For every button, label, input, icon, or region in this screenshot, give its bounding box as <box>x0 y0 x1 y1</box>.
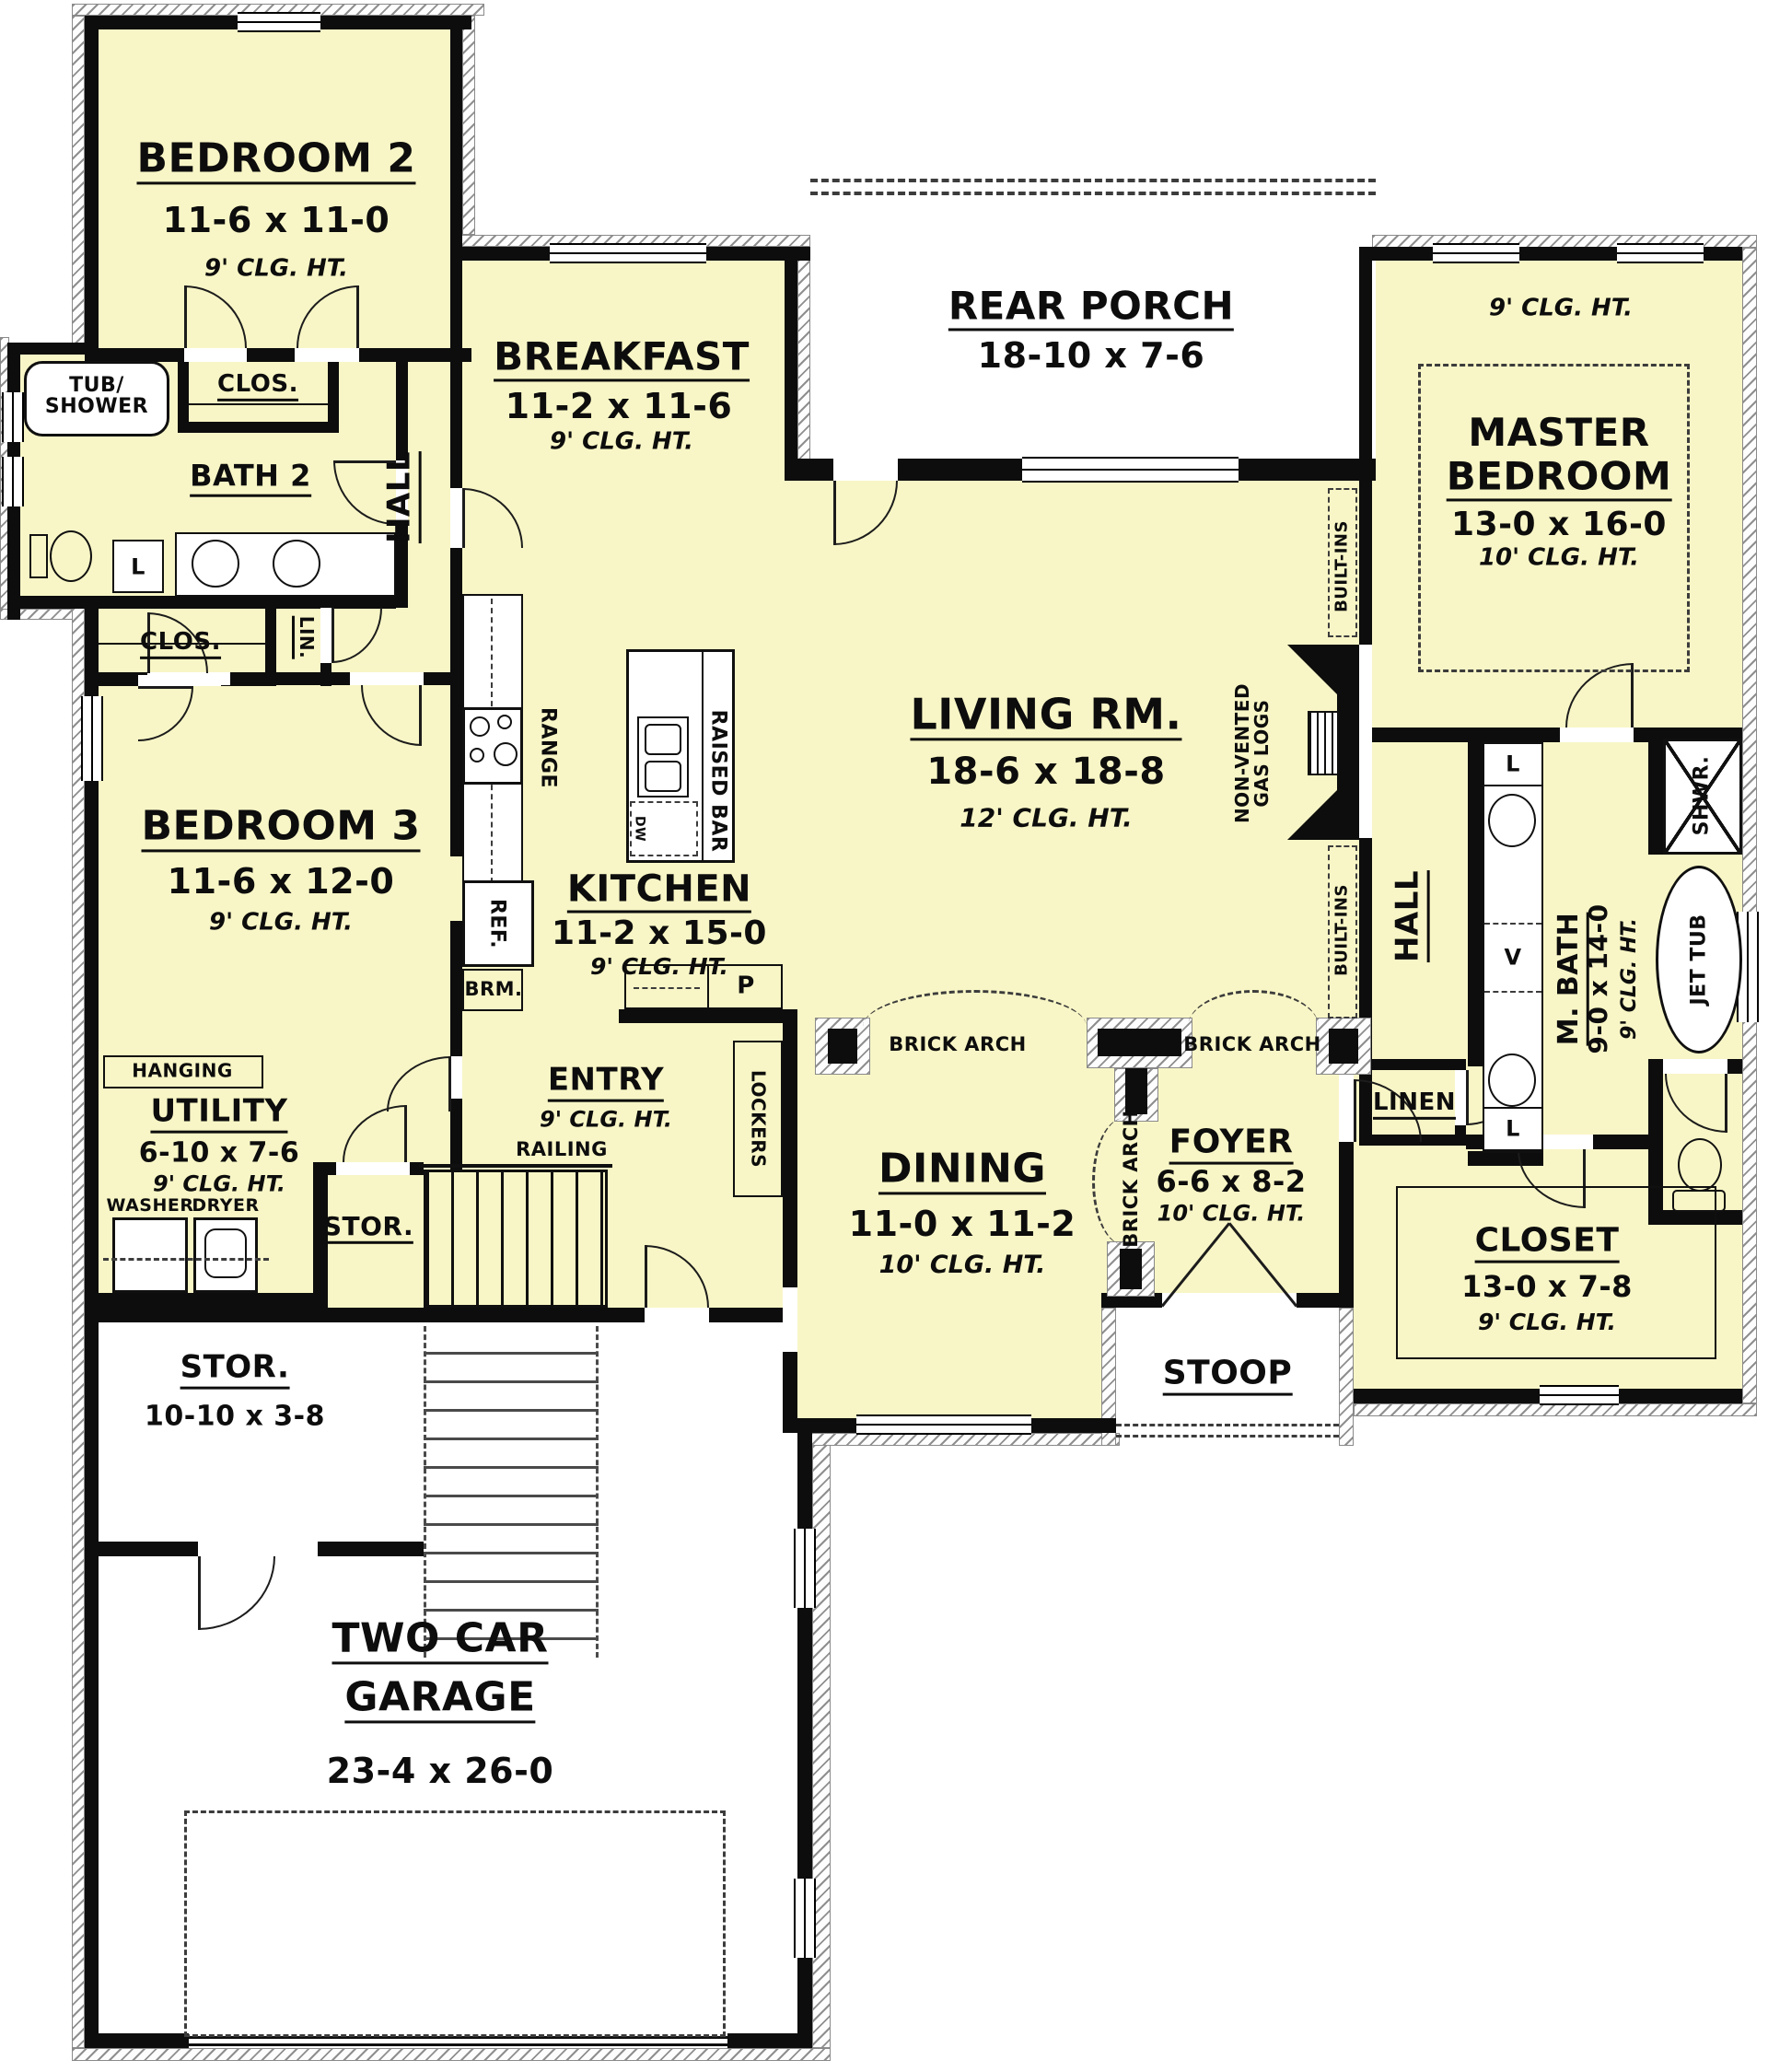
room-name-kitchen: KITCHEN <box>567 870 751 914</box>
room-clg-entry: 9' CLG. HT. <box>540 1108 672 1131</box>
dryer-door <box>204 1228 247 1278</box>
label-linen-chute: LIN. <box>292 616 316 659</box>
door-opening <box>295 348 359 362</box>
room-dims-bedroom2: 11-6 x 11-0 <box>163 203 390 239</box>
range-burner <box>470 716 490 737</box>
window <box>856 1414 1031 1435</box>
room-name-living: LIVING RM. <box>910 692 1181 740</box>
label-built-ins-top: BUILT-INS <box>1334 520 1352 612</box>
toilet-bowl <box>1678 1138 1722 1192</box>
room-name-hall1: HALL <box>384 451 422 543</box>
exterior-wall-hatch <box>1354 1403 1757 1416</box>
wall <box>85 608 99 2048</box>
room-clg-kitchen: 9' CLG. HT. <box>590 955 728 979</box>
room-name-breakfast: BREAKFAST <box>494 336 750 381</box>
room-dims-master: 13-0 x 16-0 <box>1451 507 1667 542</box>
wall <box>7 596 396 609</box>
room-clg-living: 12' CLG. HT. <box>960 804 1132 831</box>
wall <box>783 1023 797 1287</box>
stoop-edge-dash <box>1116 1435 1339 1438</box>
label-dryer: DRYER <box>192 1197 259 1216</box>
island-sink-bowl <box>645 724 681 755</box>
label-chute-l1: L <box>131 555 145 578</box>
room-name-hall2: HALL <box>1392 870 1430 962</box>
sink <box>192 540 239 588</box>
wall <box>1339 1142 1354 1308</box>
label-tub-line2: SHOWER <box>45 395 148 418</box>
raised-bar-line <box>702 649 704 863</box>
label-lockers: LOCKERS <box>749 1070 768 1168</box>
garage-door-line <box>189 2043 727 2046</box>
exterior-wall-hatch <box>462 16 475 235</box>
room-dims-dining: 11-0 x 11-2 <box>849 1206 1076 1243</box>
window <box>794 1879 816 1958</box>
room-dims-foyer: 6-6 x 8-2 <box>1156 1167 1306 1198</box>
door-opening <box>320 608 331 663</box>
exterior-wall-hatch <box>72 16 85 349</box>
toilet-tank <box>29 534 48 578</box>
toilet-bowl <box>50 530 92 582</box>
label-brick-arch-2: BRICK ARCH <box>1183 1034 1320 1054</box>
label-brick-arch-1: BRICK ARCH <box>889 1034 1026 1054</box>
arch-column-core <box>1120 1249 1142 1289</box>
room-name-bedroom2: BEDROOM 2 <box>136 137 415 184</box>
label-chute-l2: L <box>1506 752 1520 775</box>
wall <box>85 348 471 362</box>
room-name-entry: ENTRY <box>548 1065 664 1102</box>
attic-stair-dashed <box>424 1326 599 1658</box>
window <box>1433 243 1519 263</box>
wall <box>1359 481 1372 645</box>
wall <box>85 1293 318 1308</box>
door-opening <box>350 672 424 685</box>
wall <box>1468 742 1483 1066</box>
arch-column-core <box>828 1029 857 1064</box>
stair-railing-line <box>419 1164 612 1168</box>
wall <box>85 1308 424 1322</box>
room-dims-kitchen: 11-2 x 15-0 <box>552 916 767 951</box>
island-sink-bowl <box>645 761 681 792</box>
room-clg-breakfast: 9' CLG. HT. <box>550 429 693 454</box>
wall <box>450 16 462 247</box>
room-dims-utility: 6-10 x 7-6 <box>139 1138 300 1168</box>
label-hanging: HANGING <box>132 1062 232 1081</box>
staircase <box>424 1170 608 1308</box>
room-name-master-1: MASTER <box>1468 413 1649 453</box>
label-broom: BRM. <box>464 979 522 999</box>
door-opening <box>1455 1070 1466 1125</box>
door-opening <box>783 1287 797 1352</box>
stoop-edge-dash <box>1116 1424 1339 1426</box>
window <box>794 1529 816 1608</box>
label-jet-tub: JET TUB <box>1688 914 1709 1005</box>
label-closet1: CLOS. <box>217 372 298 402</box>
room-name-bedroom3: BEDROOM 3 <box>141 805 420 852</box>
door-opening <box>1663 1059 1727 1074</box>
label-brick-arch-3: BRICK ARCH <box>1121 1110 1141 1247</box>
window <box>238 12 320 32</box>
room-clg-mbath: 9' CLG. HT. <box>1618 918 1641 1040</box>
label-linen: LINEN <box>1373 1090 1456 1120</box>
room-name-stoop: STOOP <box>1163 1356 1293 1396</box>
label-closet2: CLOS. <box>140 630 221 659</box>
window <box>1540 1385 1619 1405</box>
label-gas-logs: NON-VENTED GAS LOGS <box>1233 683 1272 823</box>
window <box>81 696 103 781</box>
sink <box>1488 1053 1536 1107</box>
wall <box>450 548 462 672</box>
label-shower: SHWR. <box>1691 756 1712 836</box>
exterior-wall-hatch <box>72 608 85 2048</box>
wall <box>1359 247 1372 481</box>
room-dims-bedroom3: 11-6 x 12-0 <box>168 864 395 901</box>
door-opening <box>450 488 462 548</box>
label-tub-line1: TUB/ <box>69 374 124 397</box>
window <box>2 457 24 506</box>
room-label-mbath: M. BATH 9-0 x 14-0 9' CLG. HT. <box>1554 903 1642 1053</box>
gas-logs-icon <box>1308 711 1339 775</box>
door-opening <box>198 1542 318 1556</box>
room-dims-stor-lower: 10-10 x 3-8 <box>145 1402 325 1431</box>
label-pantry: P <box>737 973 755 998</box>
room-dims-mbath: 9-0 x 14-0 <box>1582 903 1612 1053</box>
label-range: RANGE <box>537 707 558 788</box>
wall <box>1363 1059 1466 1070</box>
door-opening <box>147 672 230 685</box>
room-clg-master-outer: 9' CLG. HT. <box>1489 296 1633 320</box>
room-clg-utility: 9' CLG. HT. <box>153 1172 285 1195</box>
label-built-ins-bottom: BUILT-INS <box>1334 884 1352 976</box>
door-opening <box>184 348 247 362</box>
arch-column-core <box>1329 1029 1358 1064</box>
label-vanity-v: V <box>1504 946 1521 969</box>
room-dims-closet: 13-0 x 7-8 <box>1461 1272 1633 1303</box>
room-name-rear-porch: REAR PORCH <box>948 285 1234 331</box>
room-clg-closet: 9' CLG. HT. <box>1478 1310 1616 1334</box>
room-name-foyer: FOYER <box>1169 1125 1294 1165</box>
wall <box>1297 1293 1354 1308</box>
room-dims-rear-porch: 18-10 x 7-6 <box>978 338 1205 375</box>
pantry-shelf-dash <box>634 987 700 989</box>
window <box>1617 243 1704 263</box>
window <box>1022 457 1239 483</box>
wall <box>450 685 462 856</box>
wall <box>450 247 462 488</box>
window <box>2 392 24 442</box>
door-opening <box>450 1056 462 1099</box>
washer-fixture <box>112 1217 188 1293</box>
label-tub-shower: TUB/ SHOWER <box>45 375 148 417</box>
room-name-closet: CLOSET <box>1475 1224 1620 1263</box>
wall <box>396 348 408 460</box>
exterior-wall-hatch <box>1339 1308 1354 1446</box>
window <box>550 243 706 263</box>
door-opening <box>1339 1074 1354 1142</box>
wall <box>85 16 99 349</box>
floor-bedroom2 <box>85 16 471 362</box>
wall <box>1372 728 1560 742</box>
label-refrigerator: REF. <box>486 899 507 949</box>
floor-plan: BEDROOM 2 11-6 x 11-0 9' CLG. HT. TUB/ S… <box>0 0 1768 2072</box>
garage-parking-dash <box>184 1810 726 2037</box>
room-dims-garage: 23-4 x 26-0 <box>327 1753 554 1790</box>
label-dishwasher: DW <box>633 816 646 842</box>
door-opening <box>336 1162 410 1175</box>
room-dims-living: 18-6 x 18-8 <box>926 752 1165 791</box>
label-washer: WASHER <box>106 1197 193 1216</box>
door-opening <box>1162 1293 1297 1308</box>
wall <box>1359 838 1372 1025</box>
range-burner <box>497 715 512 729</box>
exterior-wall-hatch <box>72 2048 831 2061</box>
wall <box>178 422 339 433</box>
door-opening <box>833 459 898 481</box>
room-name-stor-upper: STOR. <box>323 1213 413 1244</box>
label-railing: RAILING <box>516 1139 608 1159</box>
room-clg-foyer: 10' CLG. HT. <box>1157 1202 1306 1225</box>
exterior-wall-hatch <box>1742 248 1757 1403</box>
room-clg-master: 10' CLG. HT. <box>1479 545 1639 570</box>
room-name-garage-2: GARAGE <box>344 1676 535 1723</box>
wall <box>410 1308 797 1322</box>
room-name-utility: UTILITY <box>150 1096 287 1134</box>
closet-shelf-line <box>189 403 328 405</box>
sink <box>1488 794 1536 847</box>
exterior-wall-hatch <box>797 247 810 481</box>
room-name-master-2: BEDROOM <box>1447 456 1672 501</box>
label-chute-l3: L <box>1506 1117 1520 1140</box>
counter-dash-line <box>103 1258 269 1261</box>
door-opening <box>1560 728 1634 742</box>
room-dims-breakfast: 11-2 x 11-6 <box>506 389 733 425</box>
wall <box>785 247 797 481</box>
room-name-garage-1: TWO CAR <box>332 1617 549 1664</box>
exterior-wall-hatch <box>797 1433 1120 1446</box>
range-burner <box>494 742 518 766</box>
label-gas-line2: GAS LOGS <box>1250 699 1273 807</box>
wall <box>450 921 462 1056</box>
wall <box>1648 742 1663 855</box>
room-name-bath2: BATH 2 <box>190 461 311 497</box>
arch-column-core <box>1125 1068 1147 1114</box>
wall <box>619 1009 797 1023</box>
room-clg-bedroom2: 9' CLG. HT. <box>204 256 348 281</box>
sink <box>273 540 320 588</box>
porch-roof-line <box>810 179 1376 182</box>
door-opening <box>645 1308 709 1322</box>
range-burner <box>470 748 484 762</box>
room-name-stor-lower: STOR. <box>180 1352 290 1390</box>
room-name-dining: DINING <box>878 1147 1046 1194</box>
label-raised-bar: RAISED BAR <box>707 710 728 853</box>
room-clg-bedroom3: 9' CLG. HT. <box>209 910 353 935</box>
arch-column-core <box>1098 1029 1181 1056</box>
porch-roof-line <box>810 192 1376 195</box>
room-clg-dining: 10' CLG. HT. <box>879 1252 1046 1278</box>
